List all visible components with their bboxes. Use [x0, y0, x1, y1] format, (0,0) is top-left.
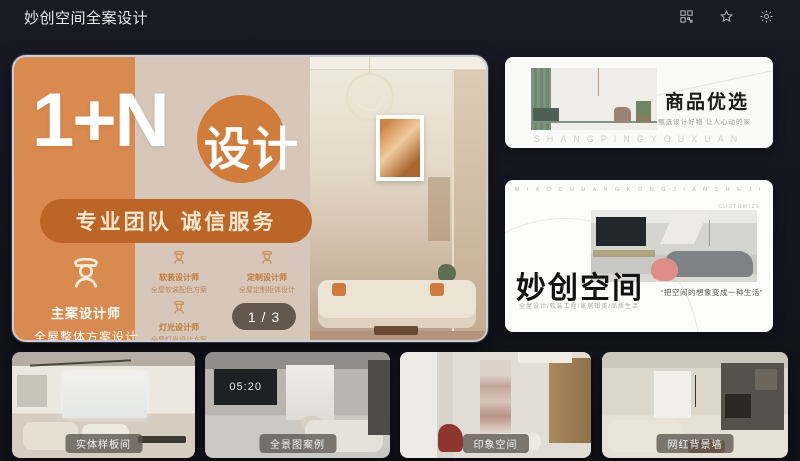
brand-card-topline: M I A O C H U A N G K O N G J I A N S H … — [505, 187, 773, 193]
designer-icon — [63, 249, 109, 295]
page-title: 妙创空间全案设计 — [24, 7, 148, 28]
thumbnail-feature-wall[interactable]: 网红背景墙 — [602, 352, 788, 458]
tv-time: 05:20 — [229, 381, 262, 393]
designer-icon — [257, 247, 277, 267]
designer-icon — [169, 247, 189, 267]
gear-icon[interactable] — [759, 9, 774, 24]
designer-icon — [169, 297, 189, 317]
hero-banner-card[interactable]: 1+N 设计 专业团队 诚信服务 主案设计师 全屋整体方案设计 软装设计师 全屋… — [12, 55, 488, 342]
shop-card-title: 商品优选 — [665, 87, 749, 114]
brand-card-quote: “把空间的想象变成一种生活” — [661, 287, 763, 298]
photo-wall-art — [376, 115, 424, 181]
brand-card-services: 全屋设计/软装工程/家居审美/品质生活 — [519, 301, 639, 310]
thumbnail-label: 印象空间 — [463, 434, 529, 453]
app-screen: 妙创空间全案设计 1+N 设计 — [0, 0, 800, 461]
qr-code-icon[interactable] — [679, 9, 694, 24]
hero-interior-photo — [310, 57, 486, 340]
photo-ceiling — [310, 57, 486, 70]
thumbnail-label: 全景图案例 — [259, 434, 336, 453]
thumbnail-panorama-case[interactable]: 05:20 全景图案例 — [205, 352, 390, 458]
thumbnail-sample-room[interactable]: 实体样板间 — [12, 352, 195, 458]
header-icons — [679, 9, 774, 24]
tv-screen: 05:20 — [214, 369, 277, 405]
hero-headline: 1+N — [32, 83, 168, 159]
star-icon[interactable] — [719, 9, 734, 24]
shop-card-photo — [531, 68, 657, 130]
shop-selection-card[interactable]: 商品优选 甄选设计好物 让人心动的家 SHANGPINGYOUXUAN — [505, 57, 773, 148]
hero-headline-suffix: 设计 — [204, 113, 300, 179]
carousel-page-indicator: 1 / 3 — [232, 303, 296, 330]
brand-space-card[interactable]: M I A O C H U A N G K O N G J I A N S H … — [505, 180, 773, 332]
role-lighting-design: 灯光设计师 全屋灯光设计方案 — [138, 297, 220, 342]
hero-slogan-pill: 专业团队 诚信服务 — [40, 199, 312, 243]
designer-roles-grid: 软装设计师 全屋软装配色方案 定制设计师 全屋定制柜体设计 灯光设计师 全屋灯光… — [136, 247, 316, 342]
thumbnail-label: 网红背景墙 — [657, 434, 734, 453]
shop-card-watermark: SHANGPINGYOUXUAN — [505, 134, 773, 144]
role-soft-furnishing: 软装设计师 全屋软装配色方案 — [138, 247, 220, 295]
role-custom-design: 定制设计师 全屋定制柜体设计 — [226, 247, 308, 295]
shop-card-subtitle: 甄选设计好物 让人心动的家 — [658, 116, 751, 126]
thumbnail-label: 实体样板间 — [65, 434, 142, 453]
thumbnail-impression-space[interactable]: 印象空间 — [400, 352, 591, 458]
